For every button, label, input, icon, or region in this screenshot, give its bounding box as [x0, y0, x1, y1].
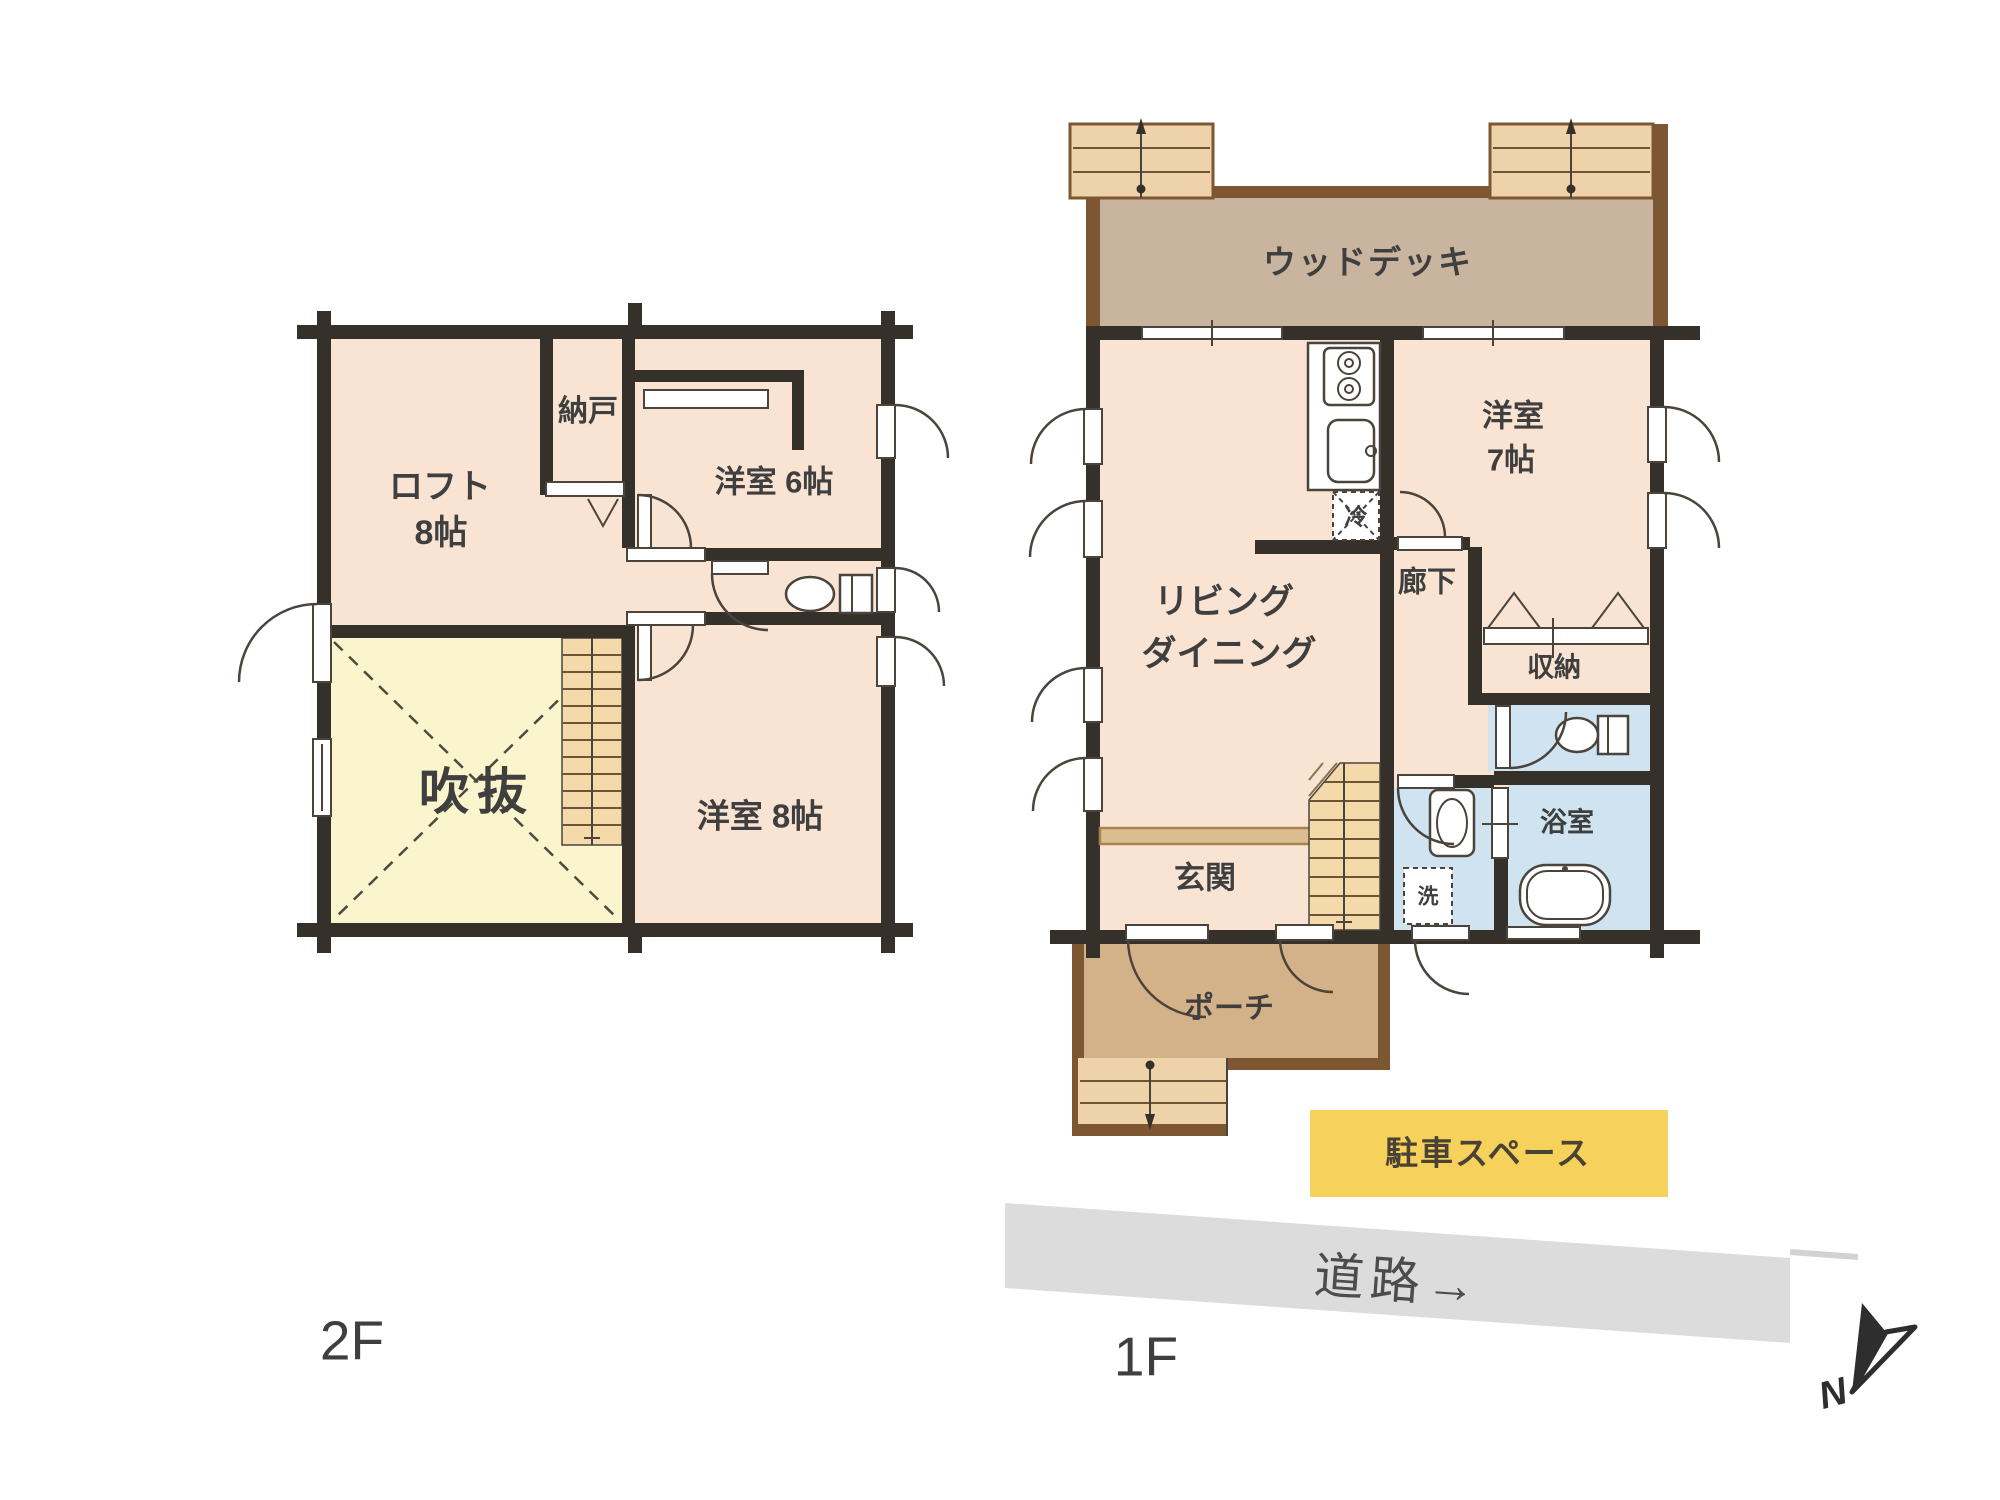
label-living: リビング	[1154, 585, 1294, 620]
porch-steps	[1078, 1058, 1227, 1136]
1f-porch	[1072, 944, 1390, 1136]
1f-wood-deck	[1070, 118, 1668, 326]
label-atrium: 吹抜	[419, 767, 535, 817]
deck-steps-right	[1490, 118, 1653, 198]
label-storage: 納戸	[558, 397, 618, 427]
label-road: 道路→	[1312, 1250, 1483, 1312]
label-washer: 洗	[1418, 887, 1439, 908]
label-western6: 洋室 6帖	[715, 467, 834, 498]
label-closet: 収納	[1527, 655, 1581, 682]
label-floor2: 2F	[320, 1314, 384, 1369]
sink-icon	[1328, 420, 1374, 482]
label-bathroom: 浴室	[1540, 810, 1594, 837]
label-parking: 駐車スペース	[1385, 1137, 1591, 1170]
floorplan-drawing	[0, 0, 2000, 1500]
label-loft: ロフト	[389, 470, 491, 504]
road-edge-line	[1790, 1252, 1858, 1257]
label-wood-deck: ウッドデッキ	[1263, 246, 1473, 279]
deck-steps-left	[1070, 118, 1213, 198]
bathtub-icon	[1520, 865, 1610, 925]
label-fridge: 冷	[1345, 506, 1368, 529]
label-western7: 洋室	[1482, 401, 1544, 432]
floorplan-page: ロフト 8帖 納戸 洋室 6帖 吹抜 洋室 8帖 2F ウッドデッキ 洋室 7帖…	[0, 0, 2000, 1500]
2f-staircase	[562, 638, 622, 845]
stove-icon	[1324, 348, 1374, 405]
north-compass-icon	[1852, 1303, 1915, 1392]
1f-toilet-icon	[1556, 716, 1628, 754]
label-dining: ダイニング	[1141, 637, 1316, 672]
label-western7-size: 7帖	[1487, 445, 1535, 476]
2f-storage-shelf	[546, 482, 624, 496]
label-hallway: 廊下	[1398, 569, 1456, 598]
1f-staircase	[1309, 763, 1380, 930]
label-western8: 洋室 8帖	[697, 800, 824, 833]
label-entrance: 玄関	[1174, 863, 1236, 894]
label-floor1: 1F	[1114, 1330, 1178, 1385]
label-loft-size: 8帖	[415, 516, 468, 550]
label-porch: ポーチ	[1184, 994, 1274, 1024]
